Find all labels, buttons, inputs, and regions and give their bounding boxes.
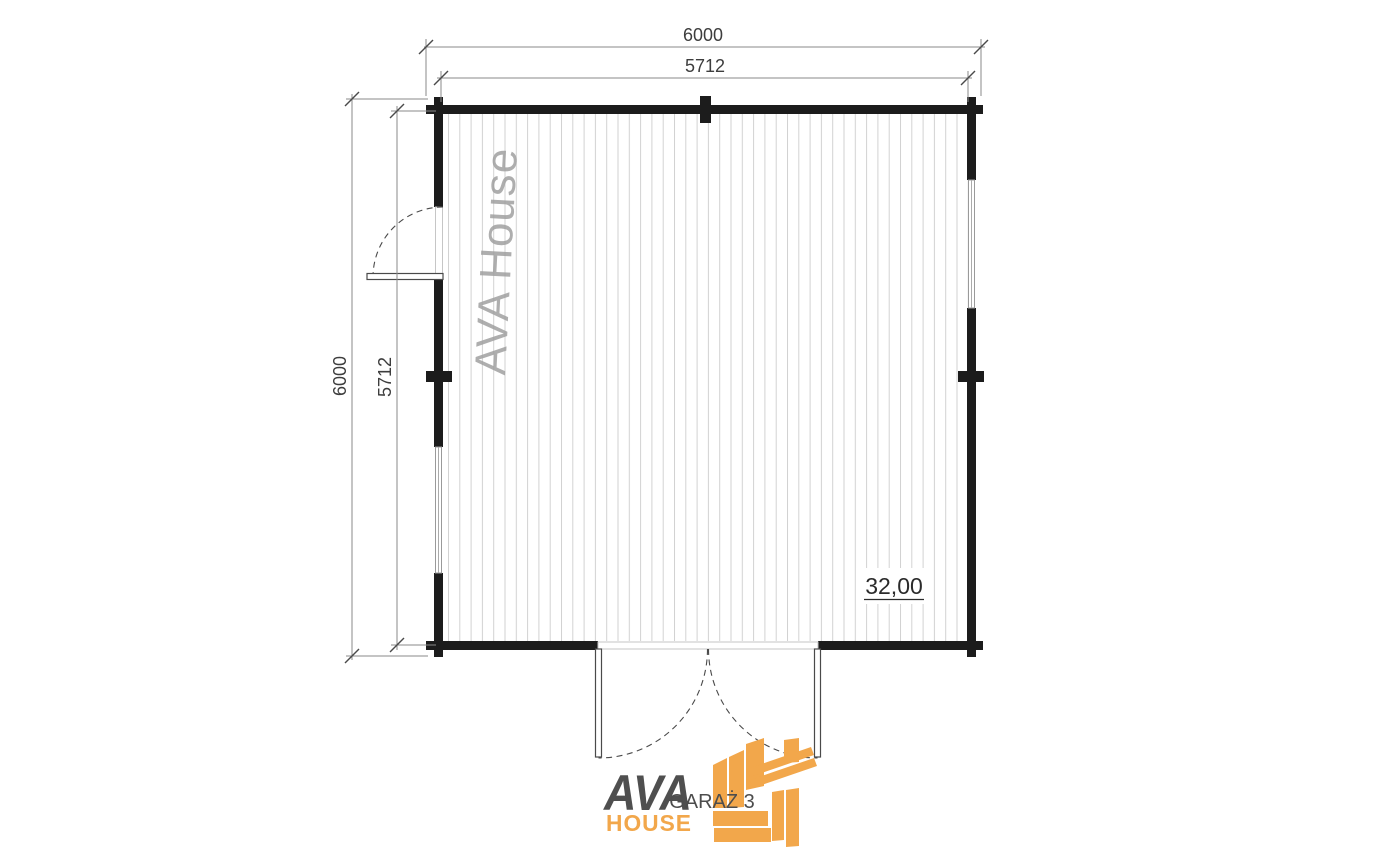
door-left-threshold (436, 207, 443, 277)
wall-bottom-left-segment (426, 641, 598, 650)
wall-right-upper-segment (967, 97, 976, 180)
window-left (436, 447, 442, 573)
wall-left-middle-segment (434, 277, 443, 447)
area-label: 32,00 (856, 568, 932, 604)
log-joint-tick-right (958, 371, 984, 382)
door-left-panel (367, 274, 443, 280)
door-double-right-panel (815, 649, 821, 757)
wall-left-lower-segment (434, 573, 443, 657)
log-joint-tick-left (426, 371, 452, 382)
floor-plan-drawing: AVA House (0, 0, 1400, 862)
floor-plan-canvas: AVA House (0, 0, 1400, 862)
area-label-text: 32,00 (865, 573, 923, 599)
dimension-label-left-inner: 5712 (375, 357, 395, 397)
door-double-threshold (598, 642, 818, 649)
drawing-title: GARAŻ 3 (669, 790, 755, 813)
door-left (367, 207, 443, 280)
door-left-swing-arc (373, 207, 443, 277)
dimension-label-left-outer: 6000 (330, 356, 350, 396)
wall-left-upper-segment (434, 97, 443, 207)
dimension-top-inner: 5712 (434, 56, 975, 102)
log-joint-tick-top (700, 96, 711, 123)
window-right (969, 180, 975, 308)
wall-bottom-right-segment (818, 641, 983, 650)
door-double-left-swing-arc (599, 649, 708, 758)
door-double-left-panel (596, 649, 602, 757)
dimension-label-top-inner: 5712 (685, 56, 725, 76)
wall-right-lower-segment (967, 308, 976, 657)
logo-house-text: HOUSE (606, 810, 692, 836)
dimension-label-top-outer: 6000 (683, 25, 723, 45)
